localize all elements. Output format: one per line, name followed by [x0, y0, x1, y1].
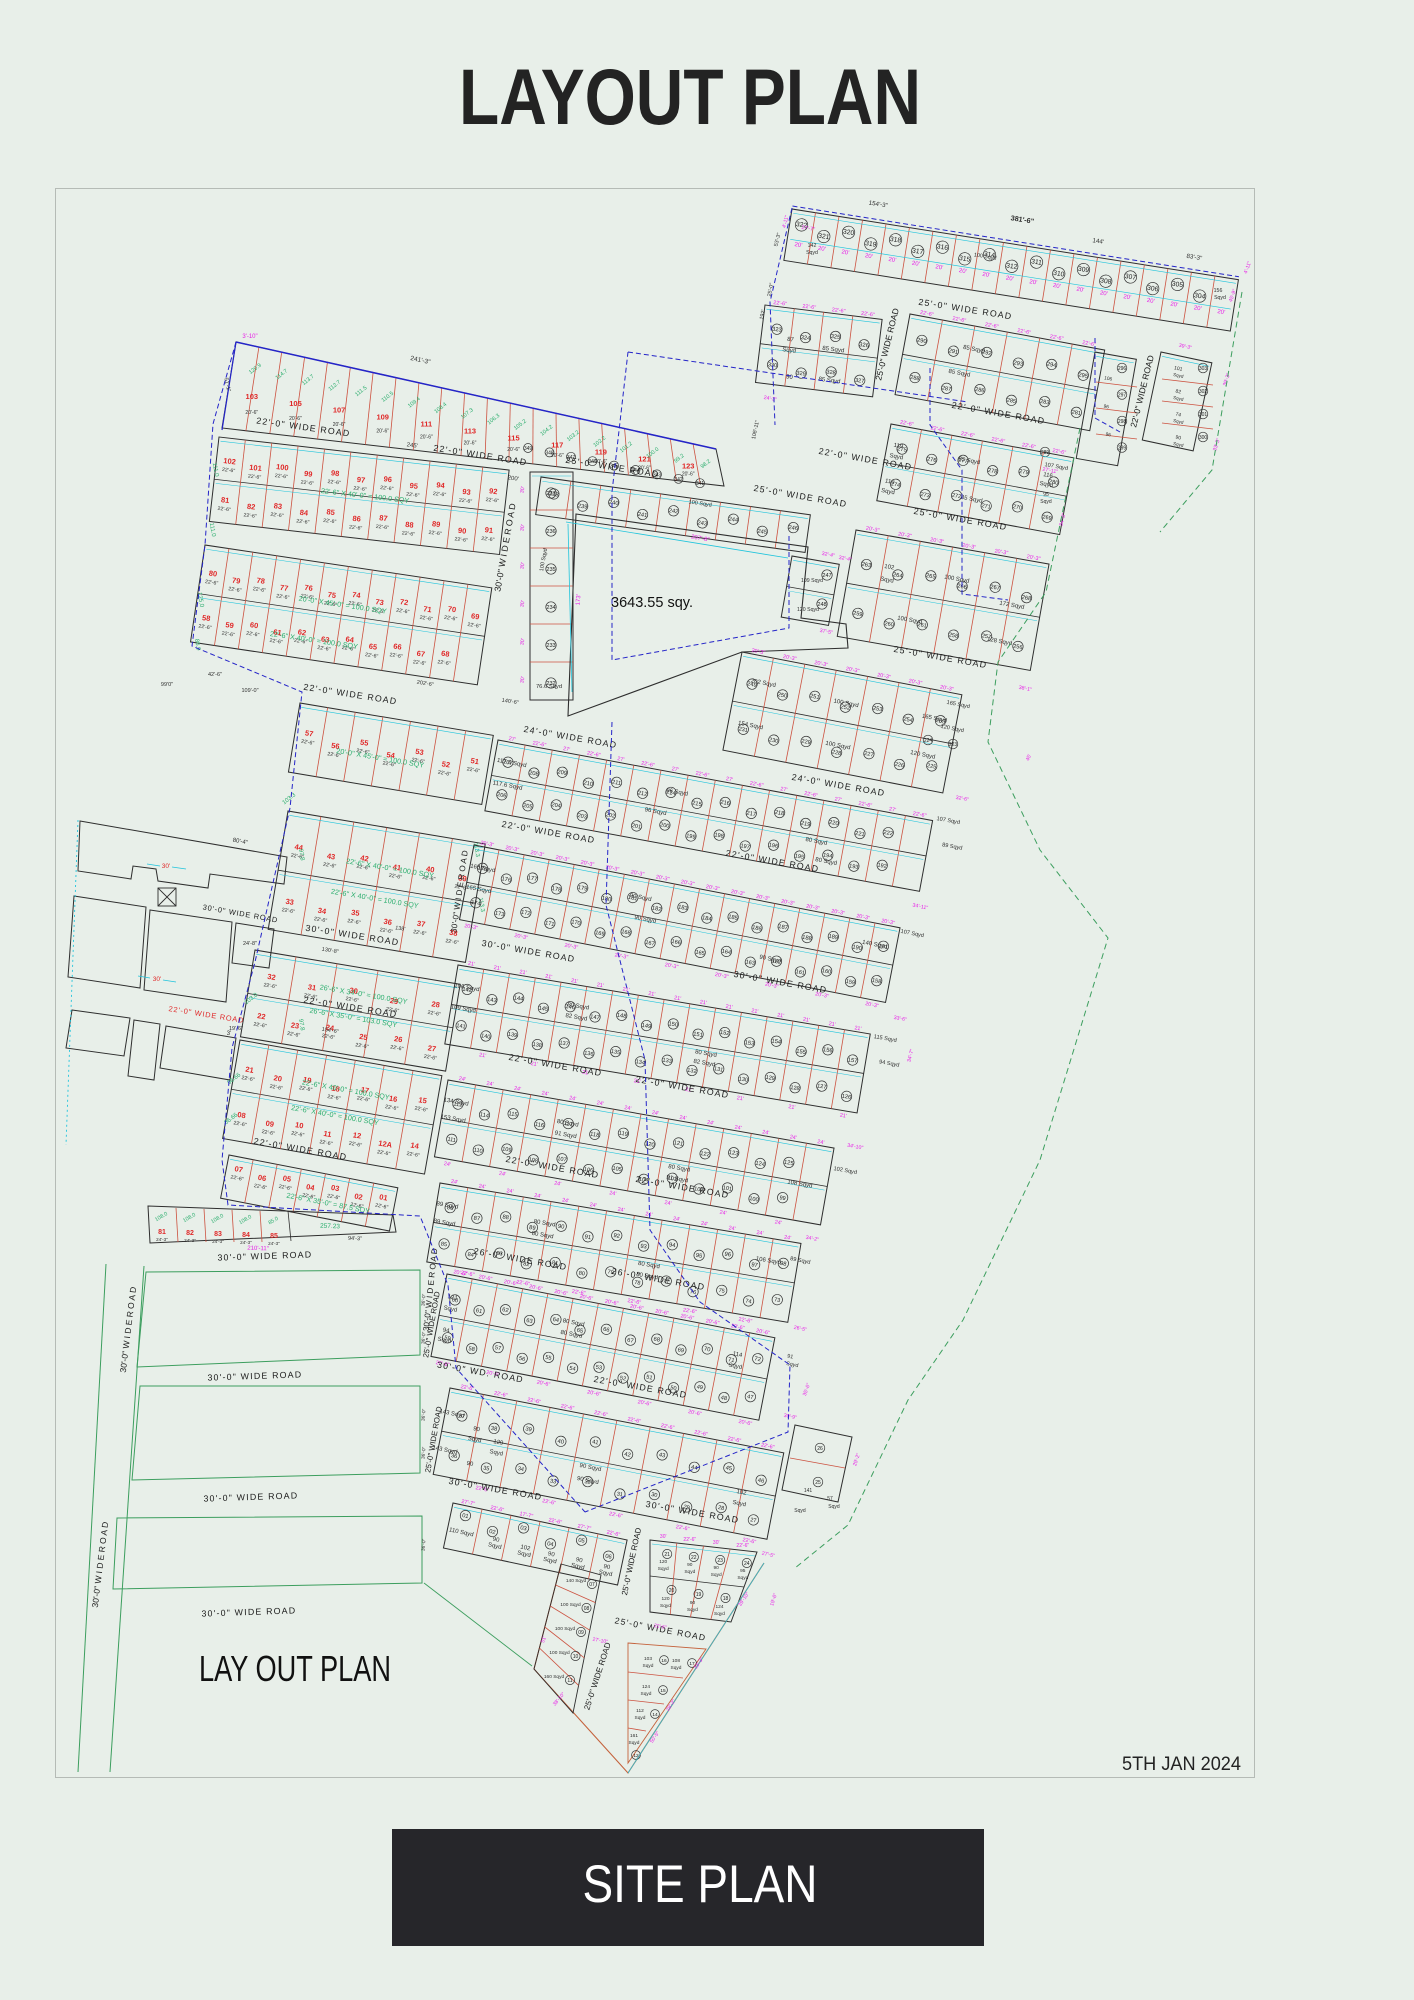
svg-text:09: 09: [265, 1119, 275, 1129]
svg-text:78: 78: [256, 576, 266, 586]
svg-text:21': 21': [674, 995, 682, 1002]
svg-text:91: 91: [484, 525, 493, 535]
svg-text:109: 109: [376, 413, 389, 422]
svg-text:35: 35: [483, 1465, 490, 1472]
svg-text:21': 21': [725, 1004, 733, 1011]
svg-text:103: 103: [644, 1656, 652, 1662]
svg-text:30': 30': [153, 976, 161, 983]
svg-text:80: 80: [208, 569, 218, 579]
svg-text:42'-6": 42'-6": [208, 672, 222, 678]
svg-text:48: 48: [720, 1395, 727, 1402]
svg-text:328: 328: [826, 369, 836, 376]
svg-text:24': 24': [789, 1134, 797, 1141]
svg-text:82: 82: [246, 502, 255, 512]
svg-text:123: 123: [682, 462, 695, 471]
svg-text:24'-8": 24'-8": [243, 941, 257, 947]
svg-text:12: 12: [633, 1753, 639, 1759]
svg-text:223: 223: [949, 742, 958, 748]
svg-text:51: 51: [646, 1374, 653, 1381]
svg-text:Sqyd: Sqyd: [643, 1663, 654, 1669]
svg-text:61: 61: [475, 1308, 482, 1315]
svg-text:102: 102: [223, 456, 236, 466]
svg-text:24': 24': [554, 1181, 562, 1188]
svg-text:20': 20': [911, 261, 920, 268]
svg-text:20': 20': [864, 253, 873, 260]
svg-text:Sqyd: Sqyd: [737, 1575, 748, 1581]
svg-text:Sqyd: Sqyd: [806, 250, 818, 256]
svg-text:30': 30': [519, 676, 526, 684]
svg-text:82: 82: [186, 1230, 194, 1237]
svg-text:80: 80: [578, 1271, 585, 1278]
svg-text:24'-3": 24'-3": [268, 1241, 280, 1246]
svg-text:12: 12: [352, 1130, 362, 1140]
svg-text:41: 41: [591, 1439, 598, 1446]
svg-text:05: 05: [282, 1173, 292, 1183]
svg-text:97: 97: [751, 1262, 758, 1269]
svg-text:58: 58: [202, 613, 212, 623]
svg-text:303: 303: [1199, 366, 1208, 372]
svg-text:94'-3": 94'-3": [348, 1236, 362, 1242]
svg-text:58: 58: [468, 1346, 475, 1353]
svg-text:21: 21: [664, 1552, 670, 1558]
svg-text:24': 24': [679, 1115, 687, 1122]
svg-text:30': 30': [519, 486, 526, 494]
svg-text:20': 20': [1076, 287, 1085, 294]
svg-text:20': 20': [1170, 302, 1179, 309]
svg-text:21': 21': [571, 978, 579, 985]
svg-text:22: 22: [691, 1555, 697, 1561]
svg-text:27': 27': [725, 776, 733, 783]
svg-text:142: 142: [808, 243, 817, 249]
svg-text:20': 20': [817, 246, 826, 253]
svg-text:98: 98: [330, 468, 339, 478]
svg-text:35: 35: [351, 908, 361, 918]
svg-text:120 Sqyd: 120 Sqyd: [797, 607, 819, 613]
svg-text:Sqyd: Sqyd: [1214, 295, 1226, 301]
svg-text:45: 45: [725, 1465, 732, 1472]
svg-text:24': 24': [513, 1086, 521, 1093]
svg-text:24': 24': [617, 1207, 625, 1214]
svg-text:42: 42: [624, 1452, 631, 1459]
svg-text:20': 20': [1052, 283, 1061, 290]
svg-text:21': 21': [736, 1095, 744, 1102]
svg-text:52: 52: [441, 759, 451, 769]
svg-text:101: 101: [249, 463, 262, 473]
svg-text:20'-6": 20'-6": [420, 435, 433, 441]
svg-text:Sqyd: Sqyd: [687, 1607, 698, 1613]
svg-text:20': 20': [958, 268, 967, 275]
svg-text:99: 99: [779, 1195, 786, 1202]
svg-text:348: 348: [545, 450, 554, 456]
svg-text:08: 08: [584, 1606, 590, 1612]
svg-text:24': 24': [706, 1120, 714, 1127]
svg-text:25: 25: [359, 1032, 369, 1042]
svg-text:24': 24': [651, 1110, 659, 1117]
svg-text:25: 25: [815, 1480, 821, 1486]
svg-text:76.6 Sqyd: 76.6 Sqyd: [536, 684, 562, 690]
svg-text:21': 21': [467, 961, 475, 968]
svg-text:10: 10: [294, 1120, 304, 1130]
svg-text:108: 108: [672, 1658, 680, 1664]
svg-text:302: 302: [1199, 389, 1208, 395]
svg-text:103: 103: [246, 392, 259, 401]
svg-text:247: 247: [822, 573, 831, 579]
svg-text:96: 96: [724, 1252, 731, 1259]
svg-text:11: 11: [567, 1678, 572, 1684]
svg-text:24': 24': [458, 1076, 466, 1083]
svg-text:Sqyd: Sqyd: [714, 1611, 725, 1617]
svg-text:LAY OUT PLAN: LAY OUT PLAN: [199, 1648, 391, 1689]
svg-text:92: 92: [613, 1233, 620, 1240]
svg-text:100 Sqyd: 100 Sqyd: [560, 1602, 581, 1608]
svg-text:77: 77: [279, 583, 289, 593]
svg-text:24': 24': [664, 1200, 672, 1207]
svg-text:21': 21': [479, 1052, 487, 1059]
svg-text:24'-3": 24'-3": [184, 1238, 196, 1243]
svg-text:119: 119: [595, 448, 607, 457]
svg-text:57: 57: [304, 728, 314, 738]
svg-text:Sqyd: Sqyd: [794, 1508, 806, 1514]
svg-text:LAYOUT PLAN: LAYOUT PLAN: [459, 52, 921, 141]
svg-text:120: 120: [661, 1596, 669, 1602]
svg-text:36: 36: [383, 917, 393, 927]
svg-text:27: 27: [427, 1043, 437, 1053]
svg-text:30': 30': [519, 600, 526, 608]
svg-text:60: 60: [249, 620, 259, 630]
svg-text:22: 22: [257, 1011, 267, 1021]
svg-text:24': 24': [728, 1225, 736, 1232]
svg-text:24': 24': [596, 1100, 604, 1107]
svg-text:Sqyd: Sqyd: [1040, 499, 1052, 505]
svg-text:117: 117: [551, 441, 563, 450]
svg-text:75: 75: [718, 1288, 725, 1295]
svg-text:49: 49: [696, 1384, 703, 1391]
svg-text:59: 59: [225, 620, 235, 630]
svg-text:100: 100: [276, 462, 289, 472]
svg-text:19: 19: [696, 1592, 702, 1598]
svg-text:233: 233: [546, 643, 555, 649]
svg-text:84: 84: [242, 1232, 250, 1239]
svg-text:20': 20': [841, 249, 850, 256]
svg-text:20'-6": 20'-6": [682, 472, 695, 478]
svg-text:30': 30': [162, 863, 170, 870]
svg-text:20': 20': [935, 264, 944, 271]
svg-text:27': 27': [671, 766, 679, 773]
svg-text:22'-6": 22'-6": [736, 1543, 749, 1549]
svg-text:27': 27': [508, 736, 516, 743]
svg-text:66: 66: [602, 1327, 609, 1334]
svg-text:24': 24': [498, 1171, 506, 1178]
svg-text:236: 236: [546, 529, 555, 535]
svg-text:21': 21': [788, 1104, 796, 1111]
svg-text:83: 83: [214, 1231, 222, 1238]
svg-text:30': 30': [713, 1540, 720, 1546]
svg-text:24': 24': [609, 1190, 617, 1197]
svg-text:70: 70: [703, 1346, 710, 1353]
svg-text:323: 323: [772, 327, 782, 334]
svg-text:90: 90: [457, 526, 466, 536]
svg-text:46: 46: [757, 1478, 764, 1485]
svg-text:296: 296: [1118, 366, 1127, 372]
svg-text:20': 20': [1193, 305, 1202, 312]
svg-text:21': 21': [493, 965, 501, 972]
svg-text:173': 173': [576, 594, 583, 606]
svg-text:21': 21': [545, 974, 553, 981]
svg-text:09: 09: [578, 1630, 584, 1636]
svg-text:56: 56: [518, 1356, 525, 1363]
svg-text:27': 27': [617, 756, 625, 763]
svg-text:68: 68: [653, 1337, 660, 1344]
svg-text:SITE PLAN: SITE PLAN: [583, 1855, 818, 1914]
svg-text:81: 81: [158, 1229, 166, 1236]
svg-text:67: 67: [627, 1338, 634, 1345]
svg-text:47: 47: [747, 1394, 754, 1401]
svg-text:36'-0": 36'-0": [420, 1408, 427, 1421]
svg-text:24': 24': [762, 1129, 770, 1136]
svg-text:37: 37: [416, 919, 426, 929]
svg-text:08: 08: [237, 1110, 247, 1120]
svg-text:69: 69: [677, 1347, 684, 1354]
svg-text:Sqyd: Sqyd: [711, 1572, 722, 1578]
svg-text:24': 24': [624, 1105, 632, 1112]
svg-text:24': 24': [734, 1125, 742, 1132]
svg-text:24': 24': [569, 1095, 577, 1102]
svg-text:20': 20': [1005, 276, 1014, 283]
svg-text:20': 20': [794, 242, 803, 249]
svg-text:21': 21': [648, 991, 656, 998]
svg-text:57: 57: [827, 1496, 833, 1502]
svg-text:18: 18: [723, 1596, 729, 1602]
svg-text:06: 06: [257, 1173, 267, 1183]
svg-text:24': 24': [561, 1197, 569, 1204]
svg-text:21': 21': [751, 1008, 759, 1015]
svg-text:07: 07: [589, 1582, 595, 1588]
svg-text:234: 234: [546, 605, 555, 611]
svg-text:Sqyd: Sqyd: [629, 1740, 640, 1746]
svg-text:224: 224: [924, 738, 933, 744]
svg-text:99: 99: [304, 469, 313, 479]
svg-text:24': 24': [450, 1179, 458, 1186]
svg-text:20': 20': [1029, 279, 1038, 286]
svg-text:73: 73: [774, 1297, 781, 1304]
svg-text:30': 30': [519, 524, 526, 532]
svg-text:83: 83: [273, 501, 282, 511]
svg-text:Sqyd: Sqyd: [671, 1665, 682, 1671]
svg-text:20': 20': [1123, 294, 1132, 301]
svg-text:140 Sqyd: 140 Sqyd: [566, 1578, 587, 1584]
svg-text:21': 21': [777, 1012, 785, 1019]
svg-text:95: 95: [409, 481, 418, 491]
svg-text:55: 55: [359, 738, 369, 748]
svg-text:91: 91: [584, 1234, 591, 1241]
svg-text:20': 20': [982, 272, 991, 279]
svg-text:109'-0": 109'-0": [241, 688, 258, 694]
svg-text:78: 78: [634, 1280, 641, 1287]
svg-text:141: 141: [804, 1488, 813, 1494]
svg-text:69: 69: [471, 611, 481, 621]
svg-text:300: 300: [1199, 435, 1208, 441]
svg-text:89: 89: [431, 519, 440, 529]
svg-text:55: 55: [545, 1355, 552, 1362]
svg-text:85: 85: [326, 507, 335, 517]
svg-text:33: 33: [285, 897, 295, 907]
svg-text:43: 43: [658, 1452, 665, 1459]
svg-text:90: 90: [557, 1224, 564, 1231]
svg-text:24': 24': [673, 1216, 681, 1223]
svg-text:Sqyd: Sqyd: [641, 1691, 652, 1697]
svg-text:15: 15: [418, 1095, 428, 1105]
svg-text:24': 24': [478, 1183, 486, 1190]
svg-text:95: 95: [740, 1568, 746, 1574]
svg-text:24': 24': [700, 1221, 708, 1228]
svg-text:92: 92: [489, 486, 498, 496]
svg-text:38: 38: [490, 1426, 497, 1433]
svg-text:24': 24': [817, 1139, 825, 1146]
svg-text:15: 15: [660, 1688, 666, 1694]
svg-text:85: 85: [270, 1233, 278, 1240]
svg-text:21': 21': [596, 982, 604, 989]
svg-text:20': 20': [1099, 290, 1108, 297]
svg-text:24': 24': [784, 1235, 792, 1242]
svg-text:299: 299: [1118, 446, 1127, 452]
svg-text:24': 24': [534, 1193, 542, 1200]
svg-text:21': 21': [854, 1025, 862, 1032]
svg-text:3'-10": 3'-10": [242, 334, 257, 340]
svg-text:Sqyd: Sqyd: [635, 1715, 646, 1721]
svg-text:235: 235: [546, 567, 555, 573]
svg-text:53: 53: [595, 1365, 602, 1372]
svg-text:21': 21': [802, 1017, 810, 1024]
svg-text:91: 91: [787, 1354, 794, 1361]
svg-text:26: 26: [817, 1446, 823, 1452]
svg-text:95: 95: [1043, 492, 1049, 498]
svg-text:24': 24': [774, 1219, 782, 1226]
svg-text:71: 71: [423, 604, 433, 614]
svg-text:20': 20': [888, 257, 897, 264]
svg-text:112: 112: [636, 1708, 644, 1714]
svg-text:34: 34: [517, 1466, 524, 1473]
svg-text:53: 53: [415, 747, 425, 757]
svg-text:27': 27': [562, 746, 570, 753]
svg-text:24': 24': [589, 1202, 597, 1209]
svg-text:111: 111: [421, 420, 433, 429]
svg-text:107: 107: [333, 406, 346, 415]
svg-text:24': 24': [719, 1210, 727, 1217]
svg-text:20: 20: [669, 1588, 675, 1594]
svg-text:160 Sqyd: 160 Sqyd: [544, 1674, 565, 1680]
svg-text:65: 65: [368, 642, 378, 652]
svg-text:07: 07: [234, 1164, 244, 1174]
svg-text:66: 66: [393, 642, 403, 652]
svg-text:16: 16: [661, 1658, 667, 1664]
svg-text:Sqyd: Sqyd: [828, 1504, 840, 1510]
svg-text:120: 120: [659, 1559, 667, 1565]
svg-text:36'-0": 36'-0": [420, 1446, 427, 1459]
svg-text:5TH JAN 2024: 5TH JAN 2024: [1122, 1754, 1241, 1775]
svg-text:39: 39: [525, 1426, 532, 1433]
svg-text:30': 30': [519, 562, 526, 570]
svg-text:27': 27': [888, 806, 896, 813]
svg-text:90: 90: [690, 1600, 696, 1606]
svg-text:51: 51: [470, 756, 480, 766]
svg-text:21': 21': [839, 1113, 847, 1120]
svg-text:90: 90: [714, 1565, 720, 1571]
svg-text:20'-6": 20'-6": [464, 441, 477, 447]
svg-text:72: 72: [754, 1356, 761, 1363]
svg-text:40: 40: [557, 1439, 564, 1446]
svg-text:349: 349: [524, 446, 533, 452]
svg-text:10: 10: [573, 1654, 579, 1660]
svg-text:23: 23: [717, 1558, 723, 1564]
svg-text:156: 156: [1214, 288, 1223, 294]
svg-text:88: 88: [502, 1214, 509, 1221]
svg-text:124: 124: [642, 1684, 650, 1690]
svg-text:Sqyd: Sqyd: [658, 1566, 669, 1572]
svg-text:325: 325: [830, 334, 840, 341]
svg-text:301: 301: [1199, 412, 1208, 418]
svg-text:86: 86: [352, 514, 361, 524]
svg-text:297: 297: [1118, 393, 1127, 399]
svg-text:26: 26: [393, 1034, 403, 1044]
svg-text:31: 31: [307, 982, 317, 992]
svg-text:74: 74: [745, 1298, 752, 1305]
svg-text:21': 21': [519, 969, 527, 976]
svg-text:95: 95: [695, 1253, 702, 1260]
svg-text:21': 21': [622, 987, 630, 994]
svg-text:24': 24': [541, 1090, 549, 1097]
svg-text:03: 03: [330, 1183, 340, 1193]
svg-text:100 Sqyd: 100 Sqyd: [555, 1626, 576, 1632]
svg-text:115: 115: [508, 434, 520, 443]
svg-text:257.23: 257.23: [320, 1223, 340, 1231]
svg-text:54: 54: [569, 1366, 576, 1373]
svg-text:20: 20: [273, 1073, 283, 1083]
svg-text:24': 24': [486, 1081, 494, 1088]
svg-text:57: 57: [494, 1345, 501, 1352]
svg-text:20': 20': [1217, 309, 1226, 316]
svg-text:11: 11: [323, 1129, 332, 1139]
svg-text:36'-0": 36'-0": [420, 1331, 427, 1344]
svg-text:72: 72: [399, 597, 409, 607]
svg-text:30': 30': [519, 638, 526, 646]
svg-text:76: 76: [304, 583, 314, 593]
svg-text:20': 20': [1146, 298, 1155, 305]
svg-text:161: 161: [630, 1733, 638, 1739]
svg-text:21: 21: [245, 1065, 255, 1075]
svg-text:Sqyd: Sqyd: [660, 1603, 671, 1609]
svg-text:24'-3": 24'-3": [156, 1237, 168, 1242]
svg-text:32: 32: [267, 972, 277, 982]
svg-text:62: 62: [502, 1307, 509, 1314]
svg-text:28: 28: [431, 999, 441, 1009]
svg-text:79: 79: [231, 576, 241, 586]
svg-text:20'-6": 20'-6": [376, 428, 389, 434]
svg-text:324: 324: [800, 335, 811, 342]
svg-text:93: 93: [640, 1244, 647, 1251]
svg-text:63: 63: [526, 1318, 533, 1325]
svg-text:124: 124: [715, 1604, 723, 1610]
svg-text:20'-6": 20'-6": [507, 447, 520, 453]
svg-text:93: 93: [462, 487, 471, 497]
svg-text:01: 01: [378, 1192, 388, 1202]
svg-text:87: 87: [473, 1216, 480, 1223]
svg-text:99'0": 99'0": [161, 682, 173, 688]
svg-text:19'-6": 19'-6": [229, 1026, 243, 1032]
svg-text:88: 88: [405, 520, 414, 530]
svg-text:97: 97: [356, 475, 365, 485]
svg-text:14: 14: [652, 1712, 658, 1718]
svg-text:24'-3": 24'-3": [240, 1240, 252, 1245]
